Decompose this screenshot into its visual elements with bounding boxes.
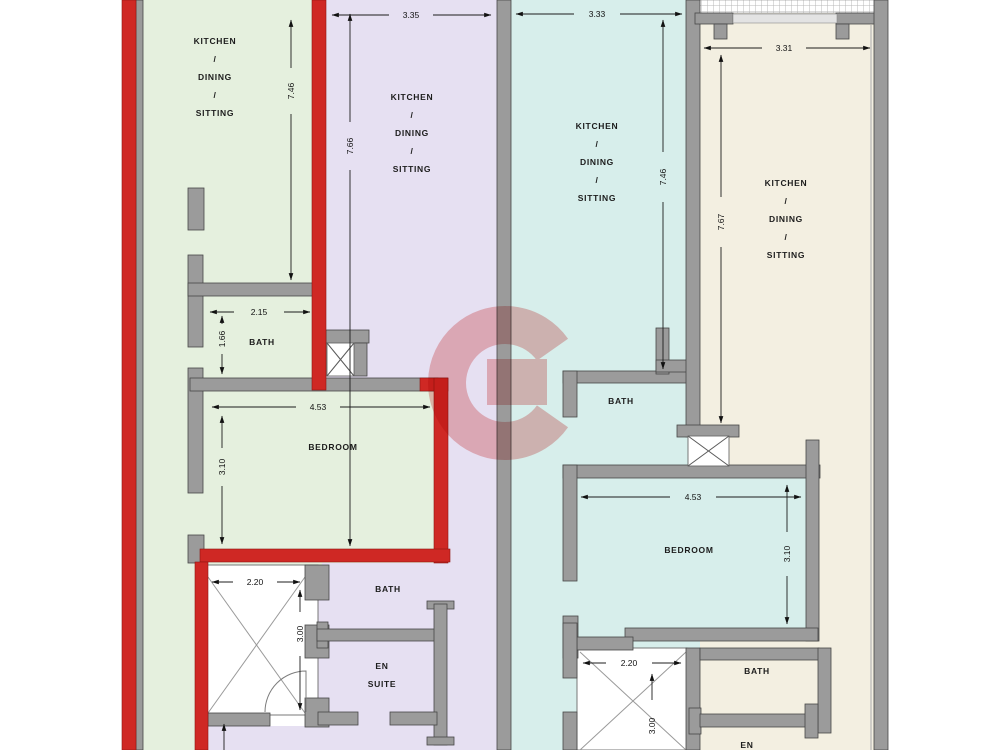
unit3-kitchen-slash: / — [595, 139, 598, 149]
unit3-bedroom-top-wall — [563, 465, 820, 478]
unit4-sitting-label: SITTING — [767, 250, 805, 260]
unit1-kitchen-slash: / — [213, 90, 216, 100]
unit1-left-wall-lining — [136, 0, 143, 750]
unit2-ensuite-label-en: EN — [375, 661, 388, 671]
unit1-bath-top-wall — [188, 283, 318, 296]
unit4-kitchen-bottom-wall — [677, 425, 739, 437]
unit1-bedroom-width-dim: 4.53 — [310, 402, 327, 412]
unit4-ensuite-wall-cap — [805, 704, 818, 738]
unit3-width-dim: 3.33 — [589, 9, 606, 19]
unit3-bedroom-label: BEDROOM — [664, 545, 713, 555]
unit2-kitchen-slash: / — [410, 110, 413, 120]
unit3-void-left-wall — [563, 712, 577, 750]
unit1-height-dim: 7.46 — [286, 82, 296, 99]
unit3-void-height-dim: 3.00 — [647, 717, 657, 734]
unit1-kitchen-label: KITCHEN — [194, 36, 237, 46]
unit4-balcony-stub — [836, 24, 849, 39]
unit4-ensuite-wall-cap — [689, 708, 701, 734]
unit2-kitchen-label: KITCHEN — [391, 92, 434, 102]
unit4-kitchen-slash: / — [784, 196, 787, 206]
unit3-bedroom-bottom-wall — [625, 628, 818, 641]
unit2-height-dim: 7.66 — [345, 137, 355, 154]
unit4-bath-ensuite-divider — [700, 714, 806, 727]
unit2-bath-ensuite-divider — [317, 629, 439, 641]
unit4-bath-top-wall — [700, 648, 819, 660]
floor-plan-drawing: 3.35 3.33 3.31 7.46 7.66 7.46 7.67 2.15 … — [0, 0, 1000, 750]
unit4-right-outer-wall — [874, 0, 888, 750]
shaft1-top-wall — [326, 330, 369, 343]
unit3-kitchen-label: KITCHEN — [576, 121, 619, 131]
unit1-bath-height-dim: 1.66 — [217, 330, 227, 347]
unit3-void-right-wall — [686, 648, 700, 750]
unit3-kitchen-corner-wall — [656, 360, 687, 372]
unit4-height-dim: 7.67 — [716, 213, 726, 230]
unit1-bedroom-height-dim: 3.10 — [217, 458, 227, 475]
unit4-balcony-wall — [836, 13, 875, 24]
unit3-bedroom-height-dim: 3.10 — [782, 545, 792, 562]
unit4-bath-label: BATH — [744, 666, 770, 676]
unit3-bath-label: BATH — [608, 396, 634, 406]
unit2-bottom-wall — [318, 712, 358, 725]
unit2-bottom-wall — [390, 712, 437, 725]
unit2-sitting-label: SITTING — [393, 164, 431, 174]
unit4-ensuite-label-en: EN — [740, 740, 753, 750]
agency-watermark-logo — [447, 325, 552, 441]
unit3-void-width-dim: 2.20 — [621, 658, 638, 668]
unit1-corridor-floor — [135, 563, 195, 750]
unit1-void-width-dim: 2.20 — [247, 577, 264, 587]
watermark-bar — [487, 359, 547, 405]
unit4-kitchen-label: KITCHEN — [765, 178, 808, 188]
unit3-void-left-wall — [563, 623, 577, 678]
unit1-bath-left-wall — [188, 255, 203, 347]
unit1-outline-right — [312, 0, 326, 390]
unit3-kitchen-slash: / — [595, 175, 598, 185]
unit1-void-height-dim: 3.00 — [295, 625, 305, 642]
unit2-dining-label: DINING — [395, 128, 429, 138]
unit1-bath-label: BATH — [249, 337, 275, 347]
unit2-ensuite-wall-cap — [427, 737, 454, 745]
unit2-lower-floor — [208, 726, 318, 750]
unit3-bedroom-left-wall — [563, 465, 577, 581]
unit4-kitchen-slash: / — [784, 232, 787, 242]
floor-plan-page: 3.35 3.33 3.31 7.46 7.66 7.46 7.67 2.15 … — [0, 0, 1000, 750]
unit3-void-top-wall — [577, 637, 633, 650]
unit4-balcony-stub — [714, 24, 727, 39]
unit1-outline-left — [122, 0, 136, 750]
unit4-balcony-glazing — [733, 14, 837, 23]
unit3-height-dim: 7.46 — [658, 168, 668, 185]
unit3-unit4-party-wall — [686, 0, 700, 437]
unit2-kitchen-slash: / — [410, 146, 413, 156]
unit1-kitchen-stub-wall — [188, 188, 204, 230]
unit4-bath-right-wall — [818, 648, 831, 733]
shaft1-side-wall — [354, 343, 367, 376]
unit4-dining-label: DINING — [769, 214, 803, 224]
unit1-outline-void-left — [195, 562, 208, 750]
unit2-width-dim: 3.35 — [403, 10, 420, 20]
unit3-sitting-label: SITTING — [578, 193, 616, 203]
unit4-width-dim: 3.31 — [776, 43, 793, 53]
unit3-bath-left-wall — [563, 371, 577, 417]
unit1-outline-bedroom-bottom — [200, 549, 450, 562]
unit1-void-bottom-wall — [208, 713, 270, 726]
unit2-bath-label: BATH — [375, 584, 401, 594]
unit1-sitting-label: SITTING — [196, 108, 234, 118]
unit1-bath-width-dim: 2.15 — [251, 307, 268, 317]
unit1-dining-label: DINING — [198, 72, 232, 82]
unit4-balcony-deck — [695, 0, 875, 13]
unit3-dining-label: DINING — [580, 157, 614, 167]
unit4-balcony-wall — [695, 13, 733, 24]
unit1-kitchen-slash: / — [213, 54, 216, 64]
unit1-bedroom-label: BEDROOM — [308, 442, 357, 452]
unit3-bedroom-width-dim: 4.53 — [685, 492, 702, 502]
unit2-ensuite-label-suite: SUITE — [368, 679, 397, 689]
unit1-void-right-wall — [305, 565, 329, 600]
unit3-bedroom-right-wall — [806, 440, 819, 641]
